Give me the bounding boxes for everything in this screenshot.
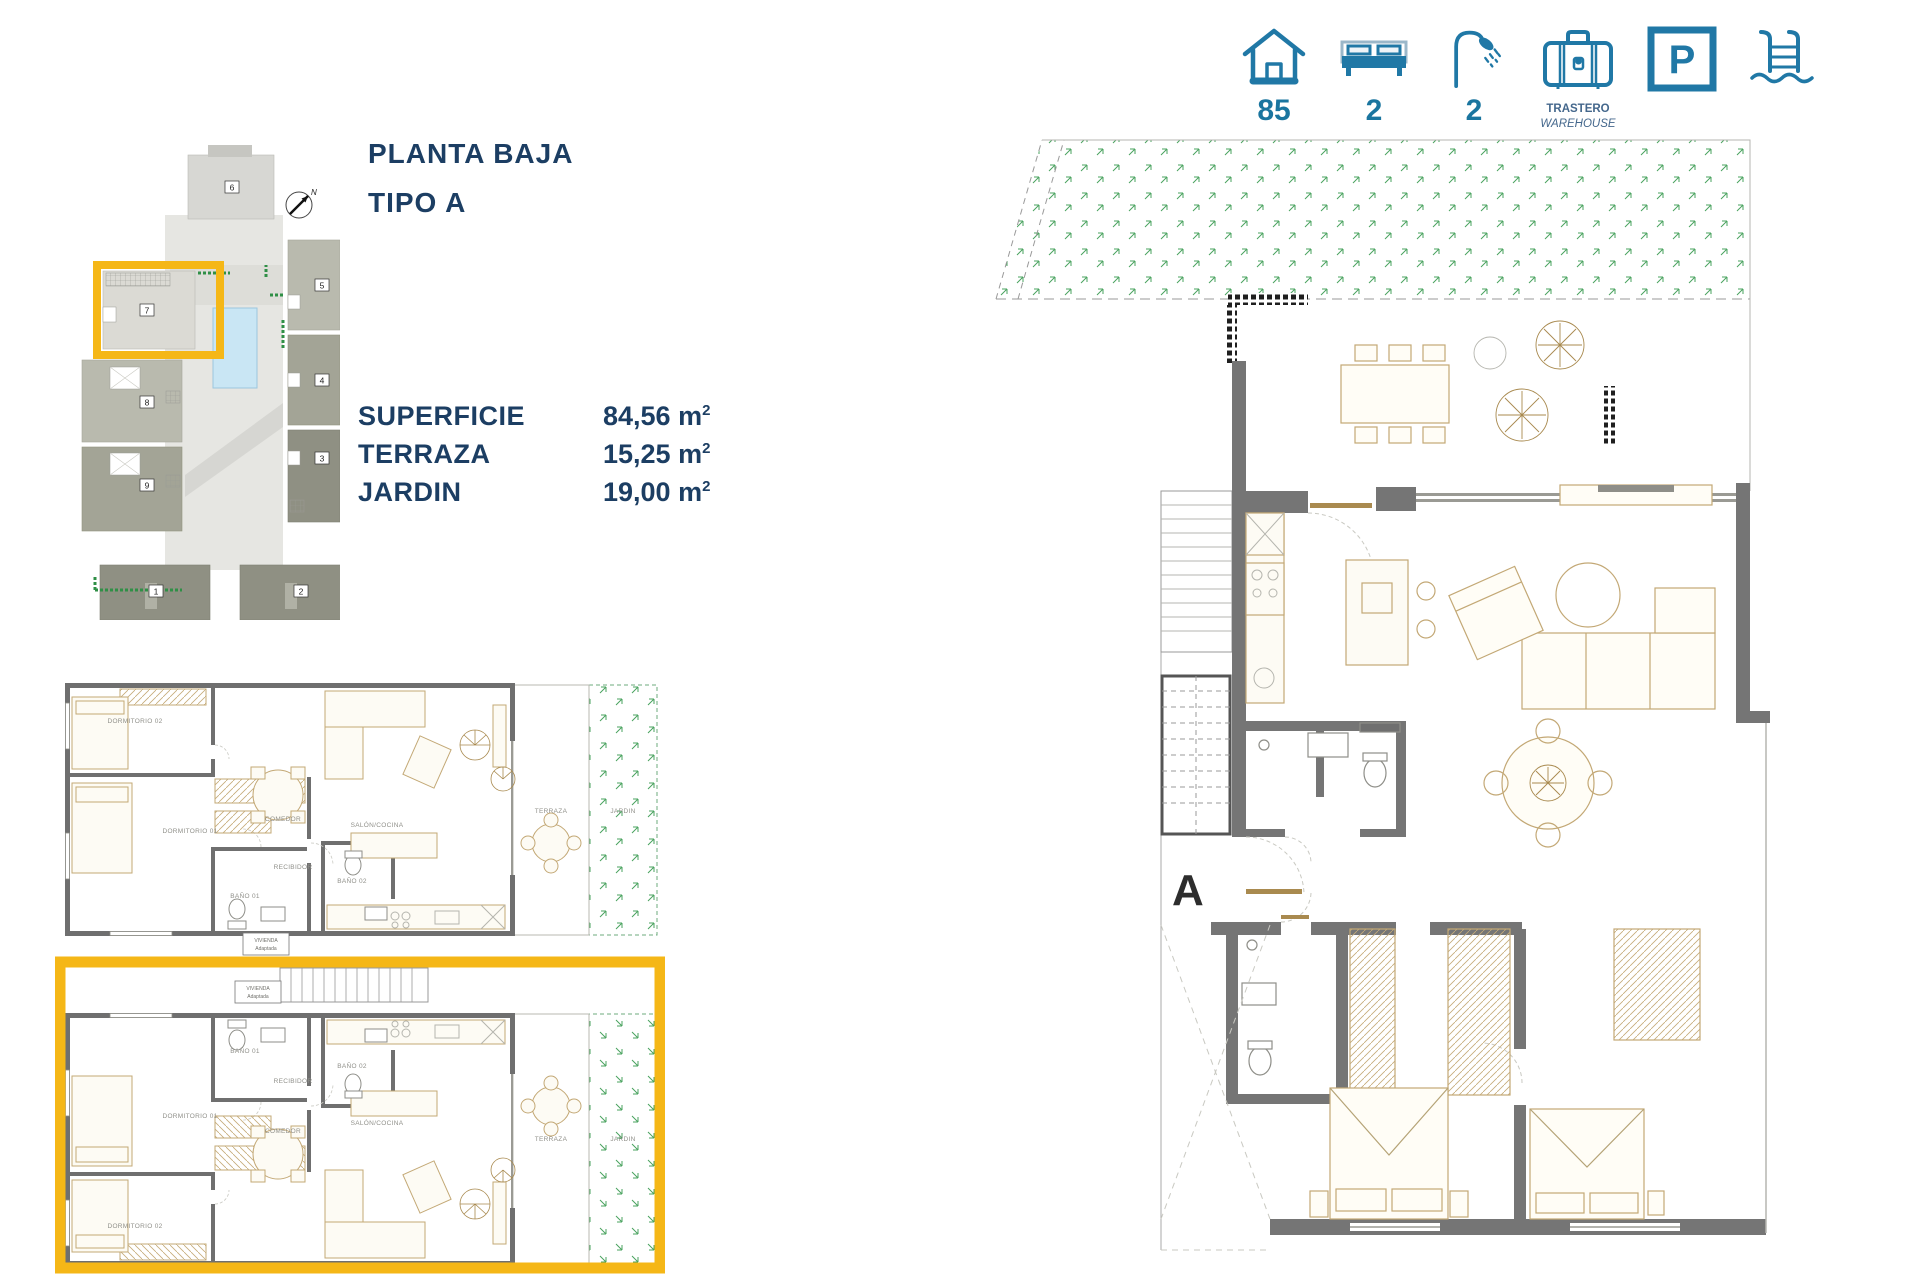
- plan-title-line1: PLANTA BAJA: [368, 138, 573, 170]
- svg-text:TERRAZA: TERRAZA: [535, 808, 568, 815]
- floorplan-page: 85 2: [0, 0, 1920, 1280]
- svg-text:TERRAZA: TERRAZA: [535, 1136, 568, 1143]
- bathrooms-item: 2: [1436, 26, 1512, 126]
- hatched-wall: [1224, 305, 1237, 363]
- svg-text:COMEDOR: COMEDOR: [265, 1128, 301, 1135]
- hatched-wall: [1228, 293, 1308, 305]
- svg-text:N: N: [311, 188, 317, 197]
- pool-icon: [1748, 26, 1816, 88]
- pool-item: [1744, 26, 1820, 88]
- house-icon: [1241, 26, 1307, 88]
- svg-text:RECIBIDOR: RECIBIDOR: [274, 1078, 313, 1085]
- svg-text:VIVIENDA: VIVIENDA: [254, 938, 278, 944]
- spec-jardin: JARDIN 19,00 m2: [358, 477, 710, 515]
- hatched-wall: [1604, 386, 1615, 444]
- bedroom-1: [1310, 1088, 1468, 1219]
- storage-item: TRASTERO WAREHOUSE: [1536, 26, 1620, 132]
- bedrooms-item: 2: [1336, 26, 1412, 126]
- surface-specs: SUPERFICIE 84,56 m2 TERRAZA 15,25 m2 JAR…: [358, 401, 710, 515]
- plan-title-line2: TIPO A: [368, 187, 573, 219]
- svg-text:6: 6: [230, 183, 235, 193]
- svg-text:VIVIENDA: VIVIENDA: [246, 986, 270, 992]
- svg-text:BAÑO 02: BAÑO 02: [337, 1061, 367, 1070]
- svg-text:DORMITORIO 01: DORMITORIO 01: [162, 828, 217, 835]
- svg-text:JARDIN: JARDIN: [610, 808, 635, 815]
- terrace-plants: [1474, 321, 1584, 441]
- svg-text:DORMITORIO 02: DORMITORIO 02: [107, 718, 162, 725]
- area-value: 85: [1257, 96, 1290, 126]
- garden-area: [996, 140, 1750, 299]
- svg-text:4: 4: [320, 376, 325, 386]
- section-label: A: [1172, 866, 1204, 915]
- svg-text:BAÑO 01: BAÑO 01: [230, 891, 260, 900]
- small-floorplan: VIVIENDA Adaptada VIVIENDA Adaptada DORM…: [55, 681, 665, 1280]
- amenities-bar: 85 2: [1236, 26, 1820, 132]
- svg-text:SALÓN/COCINA: SALÓN/COCINA: [351, 1118, 404, 1127]
- round-table: [1484, 719, 1612, 847]
- terrace: [1341, 299, 1750, 491]
- spec-terraza: TERRAZA 15,25 m2: [358, 439, 710, 477]
- bed-icon: [1339, 26, 1409, 88]
- svg-text:7: 7: [145, 306, 150, 316]
- bedroom-2: [1530, 1109, 1664, 1219]
- vivienda-adaptada-tag-lower: VIVIENDA Adaptada: [235, 981, 281, 1003]
- svg-text:8: 8: [145, 398, 150, 408]
- svg-text:5: 5: [320, 281, 325, 291]
- living-room: [1449, 485, 1715, 709]
- storage-label: TRASTERO WAREHOUSE: [1540, 102, 1615, 132]
- svg-text:BAÑO 01: BAÑO 01: [230, 1046, 260, 1055]
- stairs: [280, 968, 428, 1002]
- svg-text:P: P: [1669, 38, 1696, 82]
- bathrooms-value: 2: [1466, 96, 1483, 126]
- svg-text:BAÑO 02: BAÑO 02: [337, 876, 367, 885]
- svg-text:RECIBIDOR: RECIBIDOR: [274, 864, 313, 871]
- north-arrow-icon: N: [286, 188, 317, 218]
- large-floorplan: A: [930, 133, 1770, 1275]
- spec-superficie: SUPERFICIE 84,56 m2: [358, 401, 710, 439]
- svg-text:JARDIN: JARDIN: [610, 1136, 635, 1143]
- svg-text:3: 3: [320, 454, 325, 464]
- shower-icon: [1445, 26, 1503, 88]
- svg-text:SALÓN/COCINA: SALÓN/COCINA: [351, 820, 404, 829]
- vivienda-adaptada-tag-upper: VIVIENDA Adaptada: [243, 933, 289, 955]
- svg-text:COMEDOR: COMEDOR: [265, 816, 301, 823]
- svg-text:DORMITORIO 02: DORMITORIO 02: [107, 1223, 162, 1230]
- svg-text:Adaptada: Adaptada: [247, 994, 269, 1000]
- bedrooms-value: 2: [1366, 96, 1383, 126]
- parking-item: P: [1644, 26, 1720, 92]
- svg-text:1: 1: [154, 587, 159, 597]
- site-plan: N 6 7 8 9 5 4 3 1 2: [70, 145, 340, 620]
- area-item: 85: [1236, 26, 1312, 126]
- parking-icon: P: [1647, 26, 1717, 92]
- svg-text:2: 2: [299, 587, 304, 597]
- svg-text:Adaptada: Adaptada: [255, 946, 277, 952]
- patio-void: [1161, 925, 1270, 1250]
- svg-text:9: 9: [145, 481, 150, 491]
- bathroom-1: [1259, 723, 1400, 787]
- bathroom-2: [1242, 940, 1276, 1075]
- svg-text:DORMITORIO 01: DORMITORIO 01: [162, 1113, 217, 1120]
- warehouse-icon: [1540, 26, 1616, 92]
- plan-title: PLANTA BAJA TIPO A: [368, 138, 573, 219]
- kitchen: [1246, 513, 1435, 703]
